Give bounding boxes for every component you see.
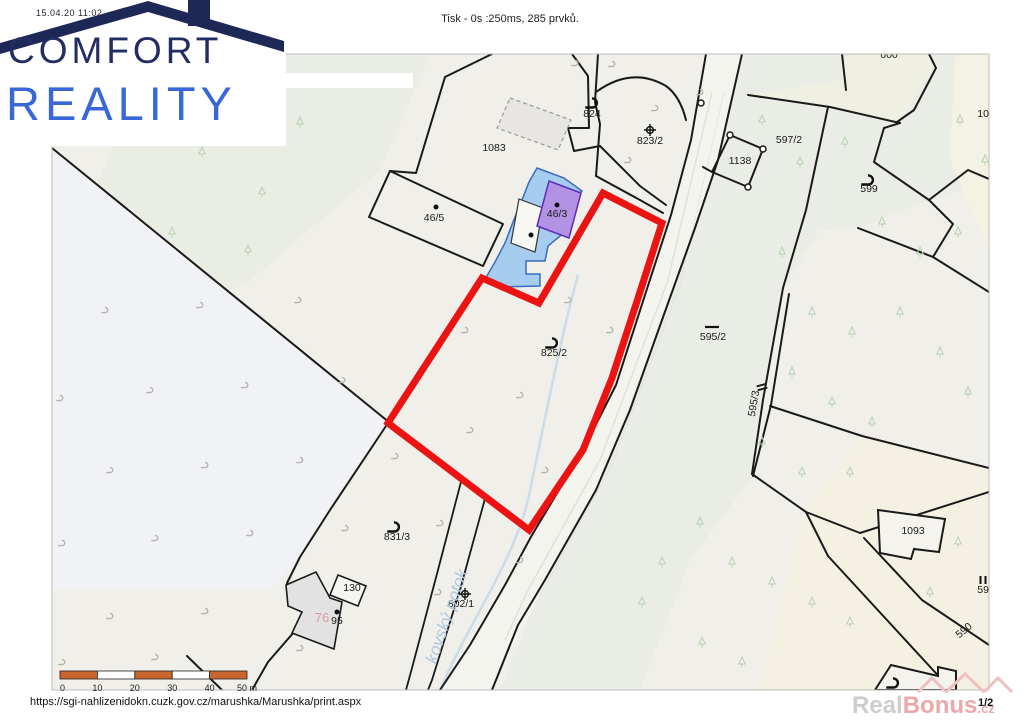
parcel-label-76: 76	[315, 610, 329, 625]
scale-bar-segment	[172, 671, 209, 679]
parcel-label-1083: 1083	[482, 142, 506, 154]
parcel-label-825-2: 825/2	[541, 347, 567, 359]
parcel-label-597-2: 597/2	[776, 134, 802, 146]
parcel-label-46-5: 46/5	[424, 212, 445, 224]
scale-bar: 01020304050 m	[56, 667, 266, 698]
dot-symbol	[434, 205, 438, 209]
logo-text-comfort: COMFORT	[8, 30, 222, 72]
parcel-label-600: 600	[880, 49, 898, 61]
parcel-label-595-2: 595/2	[700, 331, 726, 343]
parcel-label-823-2: 823/2	[637, 135, 663, 147]
watermark-real: Real	[852, 692, 903, 719]
parcel-label-831-3: 831/3	[384, 531, 410, 543]
print-timestamp: 15.04.20 11:02	[36, 8, 102, 18]
parcel-label-95: 95	[331, 615, 343, 627]
scale-bar-tick: 40	[205, 683, 215, 693]
parcel-label-130: 130	[343, 582, 361, 594]
scale-bar-tick: 10	[92, 683, 102, 693]
print-status-text: Tisk - 0s :250ms, 285 prvků.	[360, 13, 660, 25]
logo-background-strip	[286, 73, 413, 88]
scale-bar-segment	[135, 671, 172, 679]
watermark-text: RealBonus.cz	[852, 692, 995, 720]
scale-bar-tick: 0	[60, 683, 65, 693]
parcel-label-824: 824	[583, 108, 601, 120]
parcel-label-1138: 1138	[729, 155, 752, 167]
watermark: RealBonus.cz	[852, 670, 1020, 720]
parcel-label-46-3: 46/3	[547, 208, 568, 220]
watermark-bonus: Bonus	[903, 692, 978, 719]
scale-bar-segment	[97, 671, 134, 679]
scale-bar-segment	[210, 671, 247, 679]
parcel-label-599: 599	[860, 183, 878, 195]
parcel-label-595: 595	[977, 584, 995, 596]
parcel-label-1093: 1093	[901, 525, 925, 537]
scale-bar-tick: 20	[130, 683, 140, 693]
scale-bar-tick: 30	[167, 683, 177, 693]
watermark-crown-icon	[910, 670, 1020, 694]
logo-text-reality: REALITY	[6, 76, 237, 131]
watermark-cz: .cz	[977, 701, 994, 716]
scale-bar-segment	[60, 671, 97, 679]
dot-symbol	[555, 203, 559, 207]
scale-bar-tick: 50 m	[237, 683, 257, 693]
dot-symbol	[335, 610, 339, 614]
dot-symbol	[529, 233, 533, 237]
parcel-label-109: 109	[977, 108, 995, 120]
